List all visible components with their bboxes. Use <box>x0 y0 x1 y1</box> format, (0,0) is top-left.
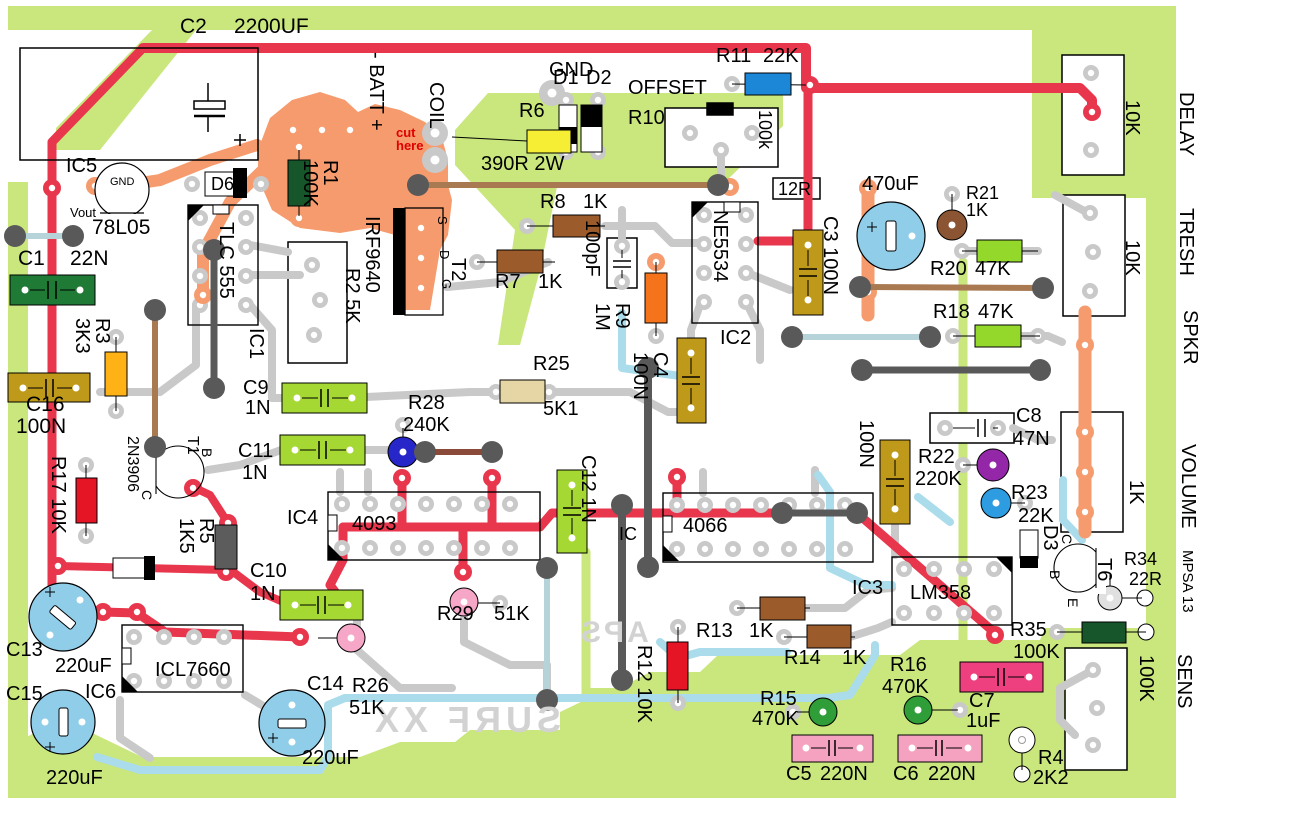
label-c6: C6 <box>893 764 919 784</box>
ic4-notch <box>328 515 337 531</box>
label-tlc555: TLC 555 <box>216 222 236 299</box>
label-c15-value: 220uF <box>46 768 103 788</box>
label-r16: R16 <box>890 655 927 675</box>
d3-diode <box>1020 530 1038 568</box>
r26-trimmer <box>318 624 365 652</box>
label-t2-d: D <box>438 250 451 259</box>
label-t1-c: C <box>140 490 154 500</box>
label-spkr: SPKR <box>1180 310 1200 364</box>
label-r25: R25 <box>533 354 570 374</box>
label-reg-gnd: GND <box>110 177 134 188</box>
label-lm358: LM358 <box>910 583 971 603</box>
label-r2: R2 5K <box>342 268 362 324</box>
r14-resistor <box>784 625 855 648</box>
label-c11: C11 <box>238 441 273 461</box>
r25-resistor <box>500 380 545 403</box>
label-4066: 4066 <box>683 516 728 536</box>
label-volume: VOLUME <box>1178 444 1198 528</box>
label-r7-value: 1K <box>538 272 562 292</box>
label-r29: R29 <box>437 604 474 624</box>
label-sens-value: 100K <box>1136 655 1156 702</box>
label-r17: R17 10K <box>48 456 68 534</box>
cap-100n-right <box>880 440 910 524</box>
label-r9: R9 1M <box>592 303 632 331</box>
c10-capacitor <box>280 590 363 620</box>
label-100n-right: 100N <box>856 420 876 468</box>
label-c10: C10 <box>250 561 287 581</box>
r7-resistor <box>477 250 555 273</box>
label-reg-78l05: 78L05 <box>92 217 150 238</box>
label-t6-c: C <box>1060 534 1074 544</box>
label-100pf: 100pF <box>582 220 602 277</box>
label-c3: C3 100N <box>820 216 840 295</box>
label-offset: OFFSET <box>628 78 707 98</box>
label-irf9640: IRF9640 <box>362 216 382 293</box>
label-c6-value: 220N <box>928 764 976 784</box>
label-c9: C9 <box>243 378 269 398</box>
label-t1-b: B <box>200 448 214 457</box>
label-r1: R1 100K <box>300 160 340 207</box>
label-r10-value: 100k <box>756 110 774 149</box>
label-c12: C12 1N <box>578 455 598 523</box>
label-c10-value: 1N <box>250 584 276 604</box>
label-c14: C14 <box>307 674 344 694</box>
label-coil: COIL <box>426 82 446 129</box>
ic6-notch <box>122 648 131 664</box>
label-d2: D2 <box>586 68 612 88</box>
ic5-78l05-regulator <box>93 163 151 222</box>
irf9640-tab <box>393 208 405 315</box>
label-r11: R11 <box>716 46 751 66</box>
label-r8: R8 <box>540 192 566 212</box>
label-t1-part: 2N3906 <box>124 436 140 492</box>
label-r7: R7 <box>495 272 521 292</box>
label-470uf: 470uF <box>862 174 919 194</box>
label-t2-s: S <box>436 216 449 225</box>
c7-capacitor <box>960 662 1043 692</box>
c4-capacitor <box>677 338 706 423</box>
label-sens: SENS <box>1174 654 1194 708</box>
silkscreen-product-name: SURF XX <box>370 702 561 738</box>
label-r14-value: 1K <box>842 648 866 668</box>
label-r22: R22 <box>918 447 955 467</box>
label-volume-value: 1K <box>1126 480 1146 504</box>
label-r28-value: 240K <box>403 415 450 435</box>
label-tresh: TRESH <box>1176 208 1196 276</box>
label-c9-value: 1N <box>245 398 271 418</box>
label-r29-value: 51K <box>494 604 530 624</box>
label-r16-value: 470K <box>882 677 929 697</box>
label-r13: R13 <box>696 621 733 641</box>
pcb-layout-screenshot: C2 2200UF IC5 GND Vout 78L05 C1 22N D6 R… <box>0 0 1299 827</box>
label-r20-value: 47K <box>975 259 1011 279</box>
label-r18: R18 <box>933 302 970 322</box>
label-c5: C5 <box>786 764 812 784</box>
label-r8-value: 1K <box>583 192 607 212</box>
r13-resistor <box>737 597 810 620</box>
label-c13-value: 220uF <box>55 656 112 676</box>
label-ic5: IC5 <box>66 156 97 176</box>
label-d1: D1 <box>553 68 579 88</box>
ic4066-notch <box>663 516 672 532</box>
label-r26-value: 51K <box>349 698 385 718</box>
label-c5-value: 220N <box>820 764 868 784</box>
label-batt: - BATT + <box>366 52 386 131</box>
d2-diode <box>581 105 602 152</box>
c470uf-capacitor <box>857 202 925 270</box>
ic1-notch <box>213 205 229 214</box>
c11-capacitor <box>280 435 365 465</box>
label-r14: R14 <box>784 648 821 668</box>
label-r21-value: 1K <box>966 201 988 219</box>
label-delay: DELAY <box>1176 92 1196 156</box>
label-c16: C16 <box>26 394 65 415</box>
r22-trimmer <box>963 449 1009 481</box>
label-icl7660: ICL7660 <box>155 660 231 680</box>
label-r4-value: 2K2 <box>1033 768 1069 788</box>
label-c2-value: 2200UF <box>234 16 309 37</box>
label-c13: C13 <box>6 640 43 660</box>
label-c1: C1 <box>18 248 45 269</box>
label-d6: D6 <box>211 175 234 193</box>
label-mpsa13: MPSA 13 <box>1180 550 1195 613</box>
label-r15-value: 470K <box>752 709 799 729</box>
r9-resistor <box>645 262 667 336</box>
label-c14-value: 220uF <box>302 748 359 768</box>
label-r22-value: 220K <box>915 469 962 489</box>
label-c16-value: 100N <box>16 416 66 437</box>
label-r23-value: 22K <box>1018 506 1054 526</box>
label-r3: R3 3K3 <box>72 318 112 354</box>
label-r12: R12 10K <box>634 645 654 723</box>
label-r35: R35 <box>1010 620 1047 640</box>
label-ne5534: NE5534 <box>710 210 730 282</box>
label-r26: R26 <box>352 676 389 696</box>
label-r10: R10 <box>628 108 665 128</box>
c9-capacitor <box>282 383 367 413</box>
label-4093: 4093 <box>352 514 397 534</box>
label-ic3: IC3 <box>852 578 883 598</box>
label-ic4: IC4 <box>287 508 318 528</box>
label-ic2: IC2 <box>720 328 751 348</box>
r21-trimmer <box>937 194 967 240</box>
label-r6: R6 <box>519 101 545 121</box>
label-r15: R15 <box>760 689 797 709</box>
silkscreen-brand: APS <box>578 618 649 648</box>
label-r13-value: 1K <box>749 621 773 641</box>
label-c15: C15 <box>6 684 43 704</box>
r17-resistor <box>76 465 97 536</box>
label-r5: R5 1K5 <box>176 518 216 554</box>
label-ic-4066: IC <box>619 525 637 543</box>
label-t2: T2 <box>448 258 468 281</box>
label-t6-e: E <box>1066 598 1080 607</box>
label-r34-value: 22R <box>1129 570 1162 588</box>
r10-adjust-notch <box>707 103 733 115</box>
c6-capacitor <box>898 735 982 762</box>
label-r20: R20 <box>930 259 967 279</box>
r5-resistor <box>215 525 237 569</box>
label-r6-value: 390R 2W <box>481 154 564 174</box>
label-c11-value: 1N <box>242 463 268 483</box>
c5-capacitor <box>792 735 873 762</box>
label-ic1: IC1 <box>246 328 266 359</box>
label-c7-value: 1uF <box>966 711 1000 731</box>
label-cut-here: cut here <box>396 126 423 152</box>
label-tresh-value: 10K <box>1122 240 1142 276</box>
label-12r: 12R <box>778 180 811 198</box>
label-d3: D3 <box>1040 525 1060 551</box>
label-c8-value: 47N <box>1013 429 1050 449</box>
d5-diode <box>113 556 155 580</box>
c2-capacitor-symbol <box>194 83 246 146</box>
label-c1-value: 22N <box>70 248 109 269</box>
label-ic6: IC6 <box>85 682 116 702</box>
label-r23: R23 <box>1011 483 1048 503</box>
label-r25-value: 5K1 <box>543 399 579 419</box>
label-r34: R34 <box>1124 550 1157 568</box>
label-t6: T6 <box>1094 558 1114 581</box>
label-c8: C8 <box>1016 406 1042 426</box>
label-c7: C7 <box>969 691 995 711</box>
label-r11-value: 22K <box>763 46 799 66</box>
label-delay-value: 10K <box>1122 100 1142 136</box>
label-t2-g: G <box>440 279 453 289</box>
r11-resistor <box>732 73 806 95</box>
label-r4: R4 <box>1038 748 1064 768</box>
label-c4: C4 100N <box>630 352 670 400</box>
label-r18-value: 47K <box>978 302 1014 322</box>
c1-capacitor <box>10 275 95 305</box>
label-t1: T1 <box>184 436 200 455</box>
label-t6-b: B <box>1048 570 1062 579</box>
label-r28: R28 <box>408 393 445 413</box>
label-c2: C2 <box>180 16 207 37</box>
label-r35-value: 100K <box>1013 642 1060 662</box>
